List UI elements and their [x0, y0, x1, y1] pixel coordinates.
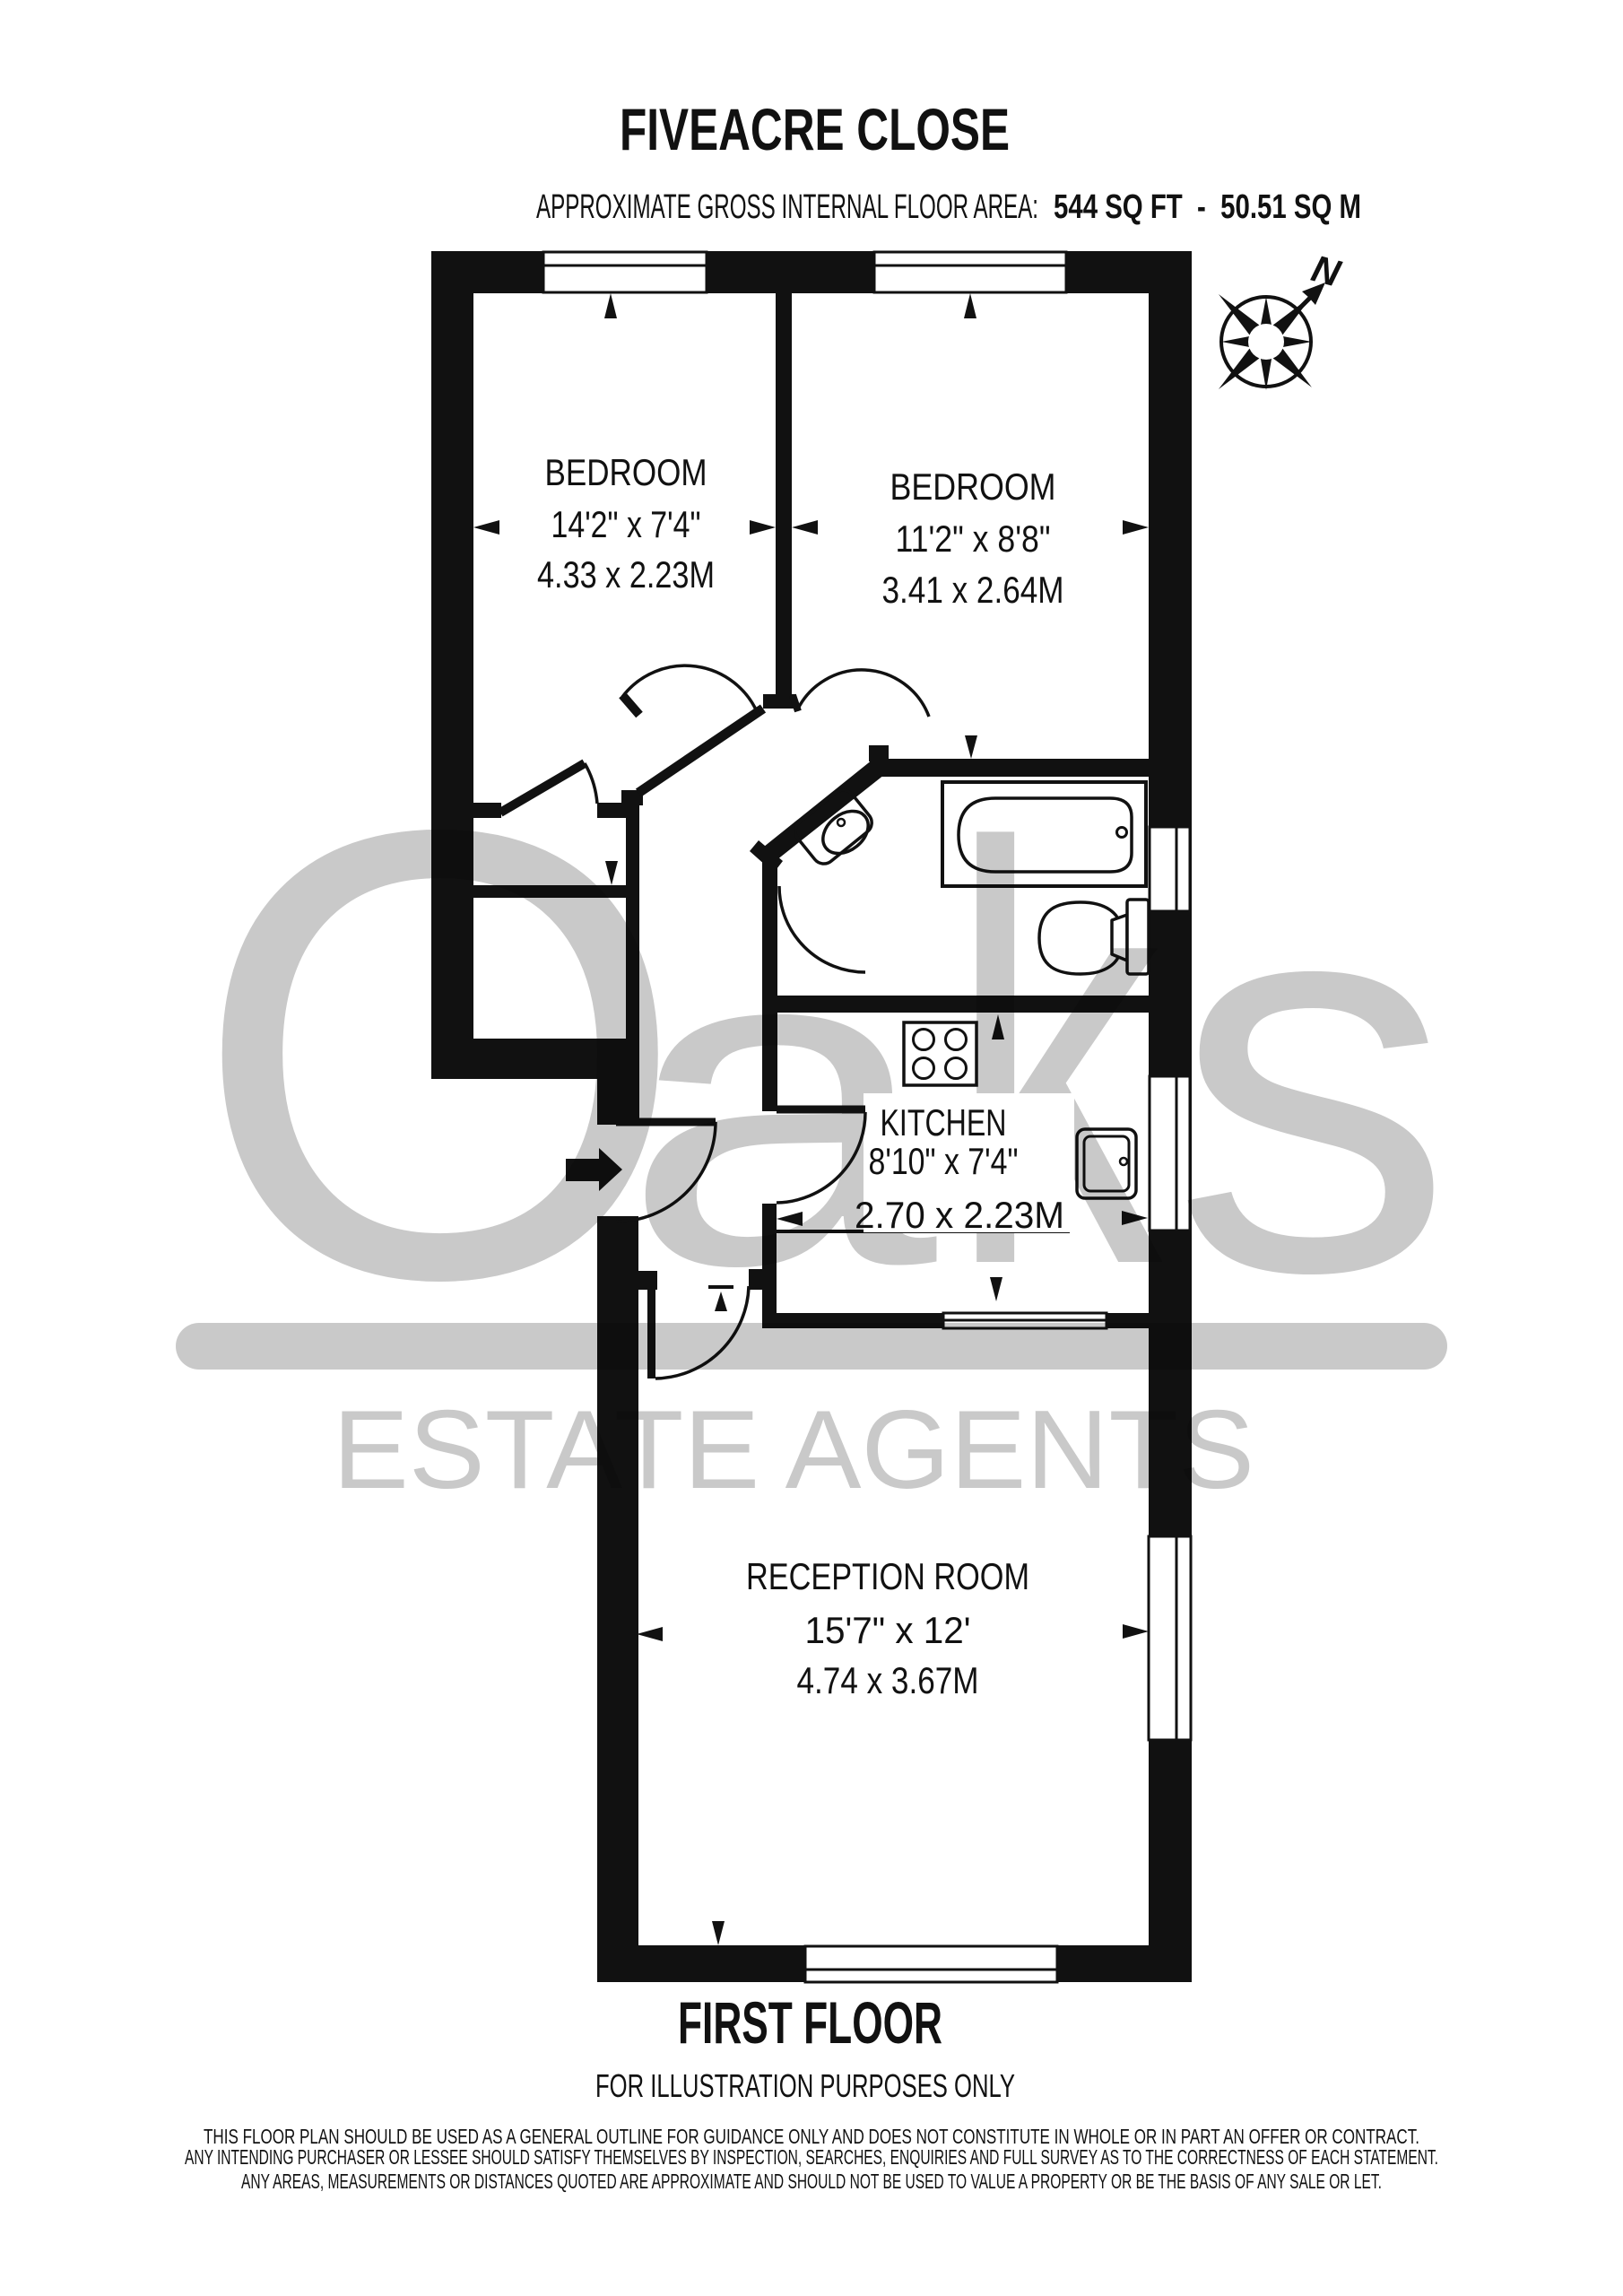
svg-text:APPROXIMATE GROSS INTERNAL FLO: APPROXIMATE GROSS INTERNAL FLOOR AREA: [536, 188, 1038, 226]
svg-text:ANY AREAS, MEASUREMENTS OR DIS: ANY AREAS, MEASUREMENTS OR DISTANCES QUO… [241, 2170, 1382, 2193]
svg-text:k: k [948, 726, 1168, 1388]
svg-text:BEDROOM: BEDROOM [890, 465, 1056, 508]
svg-text:BEDROOM: BEDROOM [545, 451, 707, 493]
svg-text:FIRST FLOOR: FIRST FLOOR [678, 1989, 942, 2056]
svg-text:FOR ILLUSTRATION PURPOSES ONLY: FOR ILLUSTRATION PURPOSES ONLY [595, 2067, 1015, 2104]
svg-text:KITCHEN: KITCHEN [881, 1101, 1007, 1144]
svg-text:11'2" x 8'8": 11'2" x 8'8" [896, 517, 1051, 560]
svg-text:2.70 x 2.23M: 2.70 x 2.23M [855, 1194, 1064, 1236]
svg-text:4.33 x 2.23M: 4.33 x 2.23M [537, 553, 715, 596]
svg-text:O: O [192, 697, 689, 1411]
svg-text:14'2" x 7'4": 14'2" x 7'4" [551, 503, 701, 545]
svg-text:RECEPTION ROOM: RECEPTION ROOM [746, 1555, 1029, 1597]
svg-text:544 SQ FT - 50.51 SQ M: 544 SQ FT - 50.51 SQ M [1054, 188, 1361, 226]
svg-text:FIVEACRE CLOSE: FIVEACRE CLOSE [620, 96, 1010, 162]
svg-text:15'7" x 12': 15'7" x 12' [805, 1609, 971, 1651]
svg-text:ESTATE AGENTS: ESTATE AGENTS [333, 1388, 1254, 1512]
svg-text:8'10" x 7'4": 8'10" x 7'4" [869, 1140, 1019, 1182]
svg-text:ANY INTENDING PURCHASER OR LES: ANY INTENDING PURCHASER OR LESSEE SHOULD… [185, 2145, 1438, 2169]
svg-text:s: s [1172, 767, 1454, 1387]
svg-text:4.74 x 3.67M: 4.74 x 3.67M [797, 1659, 979, 1701]
svg-text:3.41 x 2.64M: 3.41 x 2.64M [882, 569, 1064, 611]
